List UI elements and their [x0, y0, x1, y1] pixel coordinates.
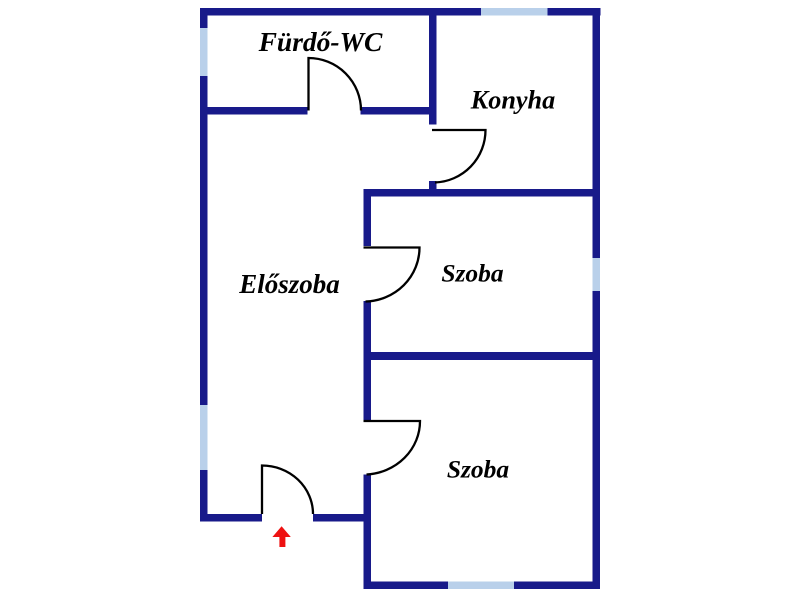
svg-text:Szoba: Szoba	[447, 455, 510, 484]
svg-text:Fürdő-WC: Fürdő-WC	[258, 26, 383, 57]
svg-text:Szoba: Szoba	[441, 259, 504, 288]
svg-text:Előszoba: Előszoba	[238, 269, 340, 299]
svg-text:Konyha: Konyha	[470, 86, 555, 115]
